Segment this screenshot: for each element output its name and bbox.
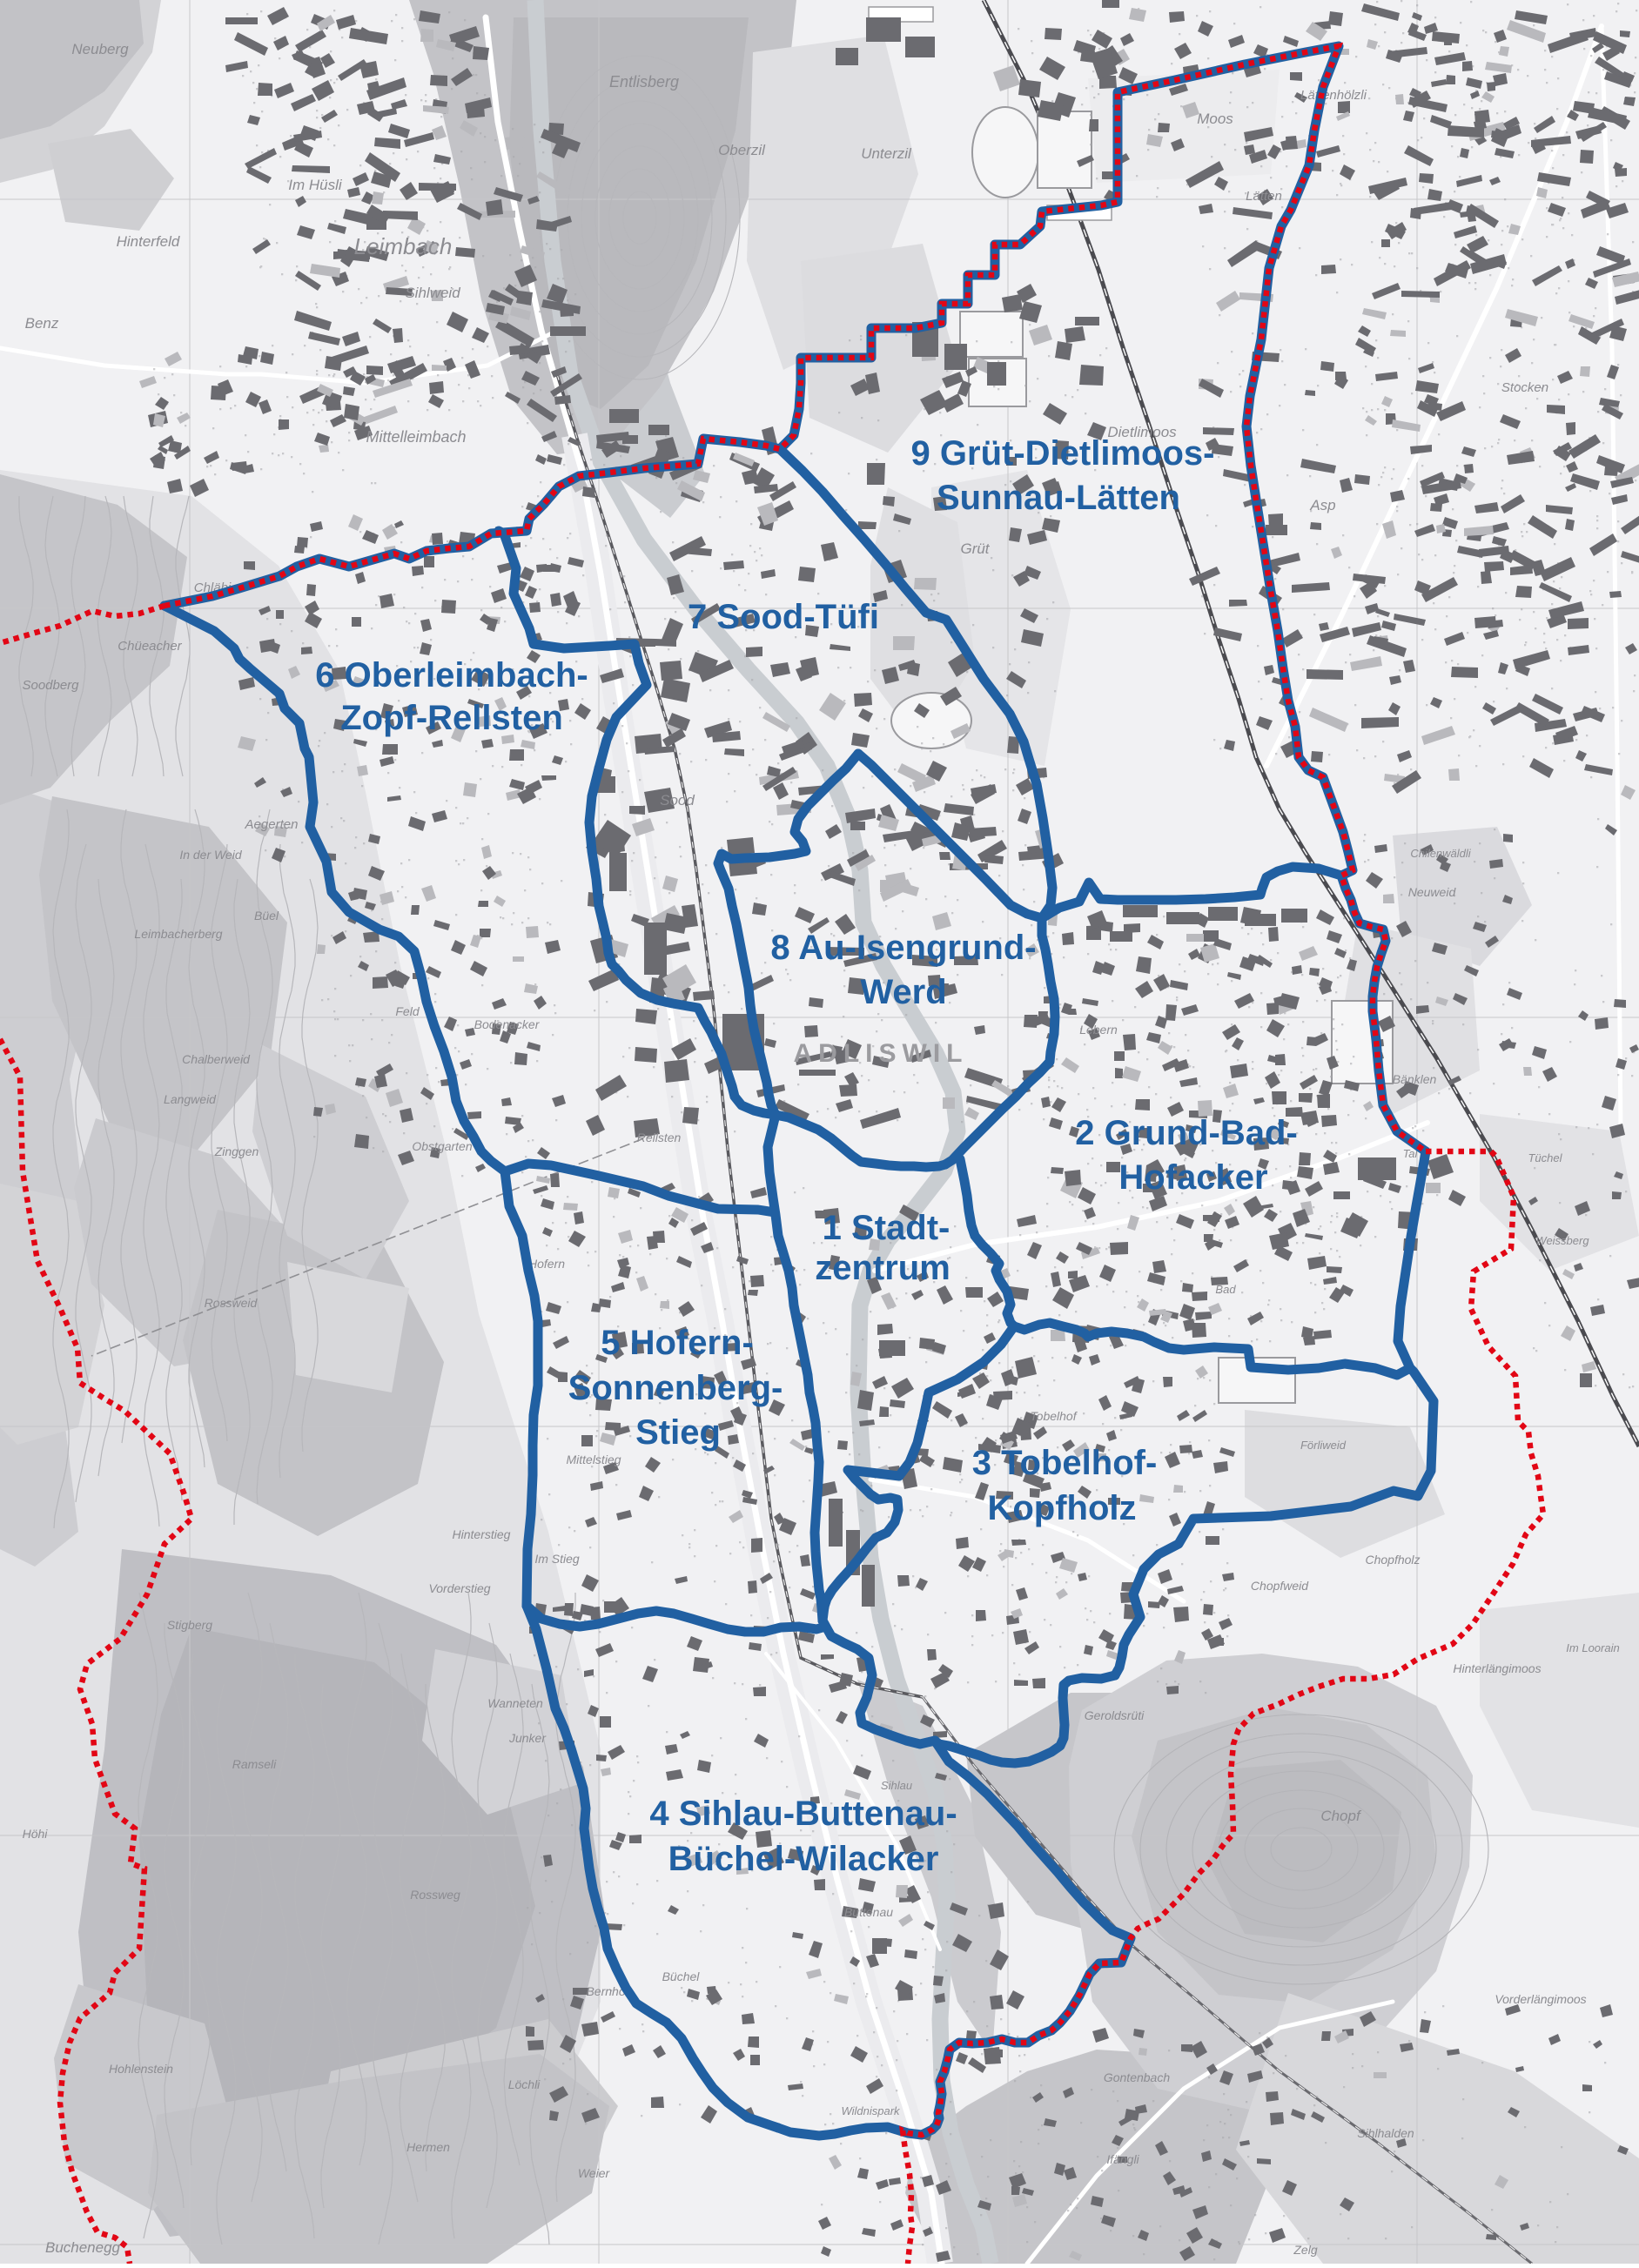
svg-text:Im Stieg: Im Stieg xyxy=(534,1552,580,1566)
svg-text:Büel: Büel xyxy=(254,909,279,923)
svg-text:Zopf-Rellsten: Zopf-Rellsten xyxy=(340,699,563,737)
svg-text:Entlisberg: Entlisberg xyxy=(609,73,679,91)
svg-text:In der Weid: In der Weid xyxy=(179,848,243,862)
svg-text:Unterzil: Unterzil xyxy=(861,145,912,162)
svg-text:Sihlau: Sihlau xyxy=(881,1779,912,1792)
svg-text:Grüt: Grüt xyxy=(960,540,990,557)
svg-text:Neuberg: Neuberg xyxy=(71,41,129,57)
svg-text:Buttenau: Buttenau xyxy=(844,1905,893,1919)
svg-text:Hofacker: Hofacker xyxy=(1118,1158,1267,1197)
svg-text:Ramseli: Ramseli xyxy=(232,1757,277,1771)
svg-text:Obstgarten: Obstgarten xyxy=(412,1139,472,1153)
svg-text:Rossweid: Rossweid xyxy=(205,1296,259,1310)
svg-text:Büchel-Wilacker: Büchel-Wilacker xyxy=(668,1840,939,1878)
svg-text:Wildnispark: Wildnispark xyxy=(841,2104,901,2117)
svg-text:Zelg: Zelg xyxy=(1293,2243,1317,2257)
svg-text:Hermen: Hermen xyxy=(406,2140,450,2154)
svg-text:Hinterstieg: Hinterstieg xyxy=(453,1527,511,1541)
svg-text:Mittelleimbach: Mittelleimbach xyxy=(366,428,466,446)
svg-text:Vorderstieg: Vorderstieg xyxy=(428,1581,490,1595)
svg-text:Feld: Feld xyxy=(395,1004,420,1018)
svg-text:Hinterfeld: Hinterfeld xyxy=(117,233,180,250)
svg-text:Buchenegg: Buchenegg xyxy=(45,2239,121,2256)
svg-text:Chopfweid: Chopfweid xyxy=(1251,1579,1309,1593)
svg-text:Gontenbach: Gontenbach xyxy=(1104,2070,1170,2084)
svg-text:Rellsten: Rellsten xyxy=(637,1131,682,1144)
svg-text:Chopf: Chopf xyxy=(1320,1808,1362,1824)
svg-text:Stigberg: Stigberg xyxy=(167,1618,212,1632)
svg-text:Geroldsrüti: Geroldsrüti xyxy=(1085,1708,1145,1722)
svg-text:Mittelstieg: Mittelstieg xyxy=(566,1453,621,1466)
svg-text:Sood: Sood xyxy=(660,792,695,809)
svg-text:8 Au-Isengrund-: 8 Au-Isengrund- xyxy=(770,929,1036,967)
svg-text:5 Hofern-: 5 Hofern- xyxy=(601,1324,754,1362)
svg-text:Tobelhof: Tobelhof xyxy=(1030,1409,1078,1423)
svg-text:Chopfholz: Chopfholz xyxy=(1365,1553,1420,1567)
svg-text:Oberzil: Oberzil xyxy=(718,142,766,158)
svg-text:Aegerten: Aegerten xyxy=(245,817,299,832)
svg-text:Höhi: Höhi xyxy=(23,1827,49,1841)
svg-text:Chüeacher: Chüeacher xyxy=(118,639,182,654)
svg-text:Sihlweid: Sihlweid xyxy=(405,285,460,301)
svg-text:Stieg: Stieg xyxy=(635,1413,721,1452)
svg-text:ADLISWIL: ADLISWIL xyxy=(794,1039,969,1068)
svg-text:Weier: Weier xyxy=(578,2166,611,2180)
svg-text:Bänklen: Bänklen xyxy=(1393,1072,1437,1086)
svg-text:Neuweid: Neuweid xyxy=(1408,885,1457,899)
svg-text:6 Oberleimbach-: 6 Oberleimbach- xyxy=(315,656,588,694)
svg-text:Langweid: Langweid xyxy=(164,1092,217,1106)
svg-text:Leimbacherberg: Leimbacherberg xyxy=(134,927,222,941)
svg-text:Sihlhalden: Sihlhalden xyxy=(1357,2126,1414,2140)
svg-text:Junker: Junker xyxy=(508,1731,547,1745)
svg-text:Hofern: Hofern xyxy=(528,1257,565,1271)
svg-text:Asp: Asp xyxy=(1309,497,1335,513)
svg-text:zentrum: zentrum xyxy=(815,1249,950,1287)
svg-text:Lättenhölzli: Lättenhölzli xyxy=(1300,88,1367,103)
svg-text:Bodenacker: Bodenacker xyxy=(474,1017,541,1031)
svg-text:Chilenwäldli: Chilenwäldli xyxy=(1410,847,1471,860)
svg-text:Moos: Moos xyxy=(1197,111,1233,127)
svg-text:Hohlenstein: Hohlenstein xyxy=(109,2062,173,2076)
svg-text:Stocken: Stocken xyxy=(1501,380,1548,395)
svg-text:3 Tobelhof-: 3 Tobelhof- xyxy=(972,1444,1158,1482)
svg-text:Bad: Bad xyxy=(1215,1283,1236,1296)
svg-text:Büchel: Büchel xyxy=(662,1969,701,1983)
svg-text:Benz: Benz xyxy=(25,315,59,332)
svg-text:Sonnenberg-: Sonnenberg- xyxy=(568,1369,783,1407)
svg-text:Tüchel: Tüchel xyxy=(1528,1151,1562,1164)
svg-text:Löchli: Löchli xyxy=(508,2077,541,2091)
svg-text:4 Sihlau-Buttenau-: 4 Sihlau-Buttenau- xyxy=(649,1795,957,1833)
svg-text:Lebern: Lebern xyxy=(1079,1023,1118,1037)
svg-text:Förliweid: Förliweid xyxy=(1300,1439,1347,1452)
svg-text:Kopfholz: Kopfholz xyxy=(987,1489,1136,1527)
svg-text:Ifängli: Ifängli xyxy=(1106,2152,1139,2166)
svg-text:Rossweg: Rossweg xyxy=(410,1888,460,1902)
svg-text:Werd: Werd xyxy=(860,973,946,1011)
svg-text:9 Grüt-Dietlimoos-: 9 Grüt-Dietlimoos- xyxy=(911,434,1215,473)
svg-text:Lätten: Lätten xyxy=(1246,189,1282,204)
svg-text:Vorderlängimoos: Vorderlängimoos xyxy=(1495,1992,1586,2006)
svg-text:2 Grund-Bad-: 2 Grund-Bad- xyxy=(1075,1114,1298,1152)
svg-text:1 Stadt-: 1 Stadt- xyxy=(823,1209,950,1247)
svg-text:Leimbach: Leimbach xyxy=(354,233,453,259)
svg-text:Sunnau-Lätten: Sunnau-Lätten xyxy=(937,479,1180,517)
svg-text:7 Sood-Tüfi: 7 Sood-Tüfi xyxy=(688,598,879,636)
svg-text:Im Hüsli: Im Hüsli xyxy=(288,177,343,193)
svg-text:Zinggen: Zinggen xyxy=(214,1144,259,1158)
svg-text:Weissberg: Weissberg xyxy=(1535,1234,1589,1247)
svg-text:Hinterlängimoos: Hinterlängimoos xyxy=(1453,1661,1541,1675)
svg-text:Im Loorain: Im Loorain xyxy=(1566,1641,1619,1654)
svg-text:Wanneten: Wanneten xyxy=(487,1696,543,1710)
svg-text:Soodberg: Soodberg xyxy=(22,678,79,693)
svg-text:Chalberweid: Chalberweid xyxy=(182,1052,251,1066)
